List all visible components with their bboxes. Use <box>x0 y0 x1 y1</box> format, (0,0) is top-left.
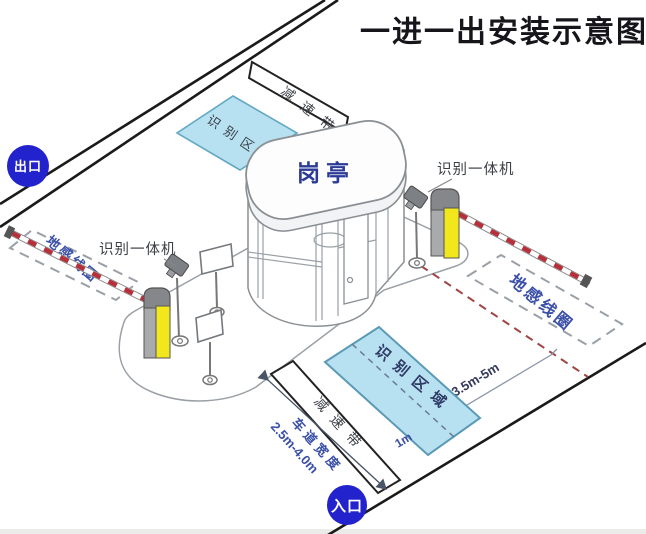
page-title: 一进一出安装示意图 <box>360 15 646 49</box>
exit-marker-label: 出口 <box>14 159 42 174</box>
entrance-marker-label: 入口 <box>331 498 363 515</box>
entrance-marker: 入口 <box>327 485 367 525</box>
diagram-canvas: 减速带 识别区域 地感线圈 地感线圈 3.5m-5m <box>0 0 646 534</box>
installation-diagram: 减速带 识别区域 地感线圈 地感线圈 3.5m-5m <box>0 0 646 534</box>
booth-label: 岗亭 <box>297 160 355 186</box>
exit-barrier-housing <box>156 306 170 358</box>
entrance-barrier-housing <box>444 208 459 258</box>
bottom-edge-shadow <box>0 529 646 534</box>
exit-marker: 出口 <box>7 145 49 187</box>
exit-camera-callout-label: 识别一体机 <box>99 241 177 258</box>
entrance-camera-callout-label: 识别一体机 <box>437 161 515 178</box>
